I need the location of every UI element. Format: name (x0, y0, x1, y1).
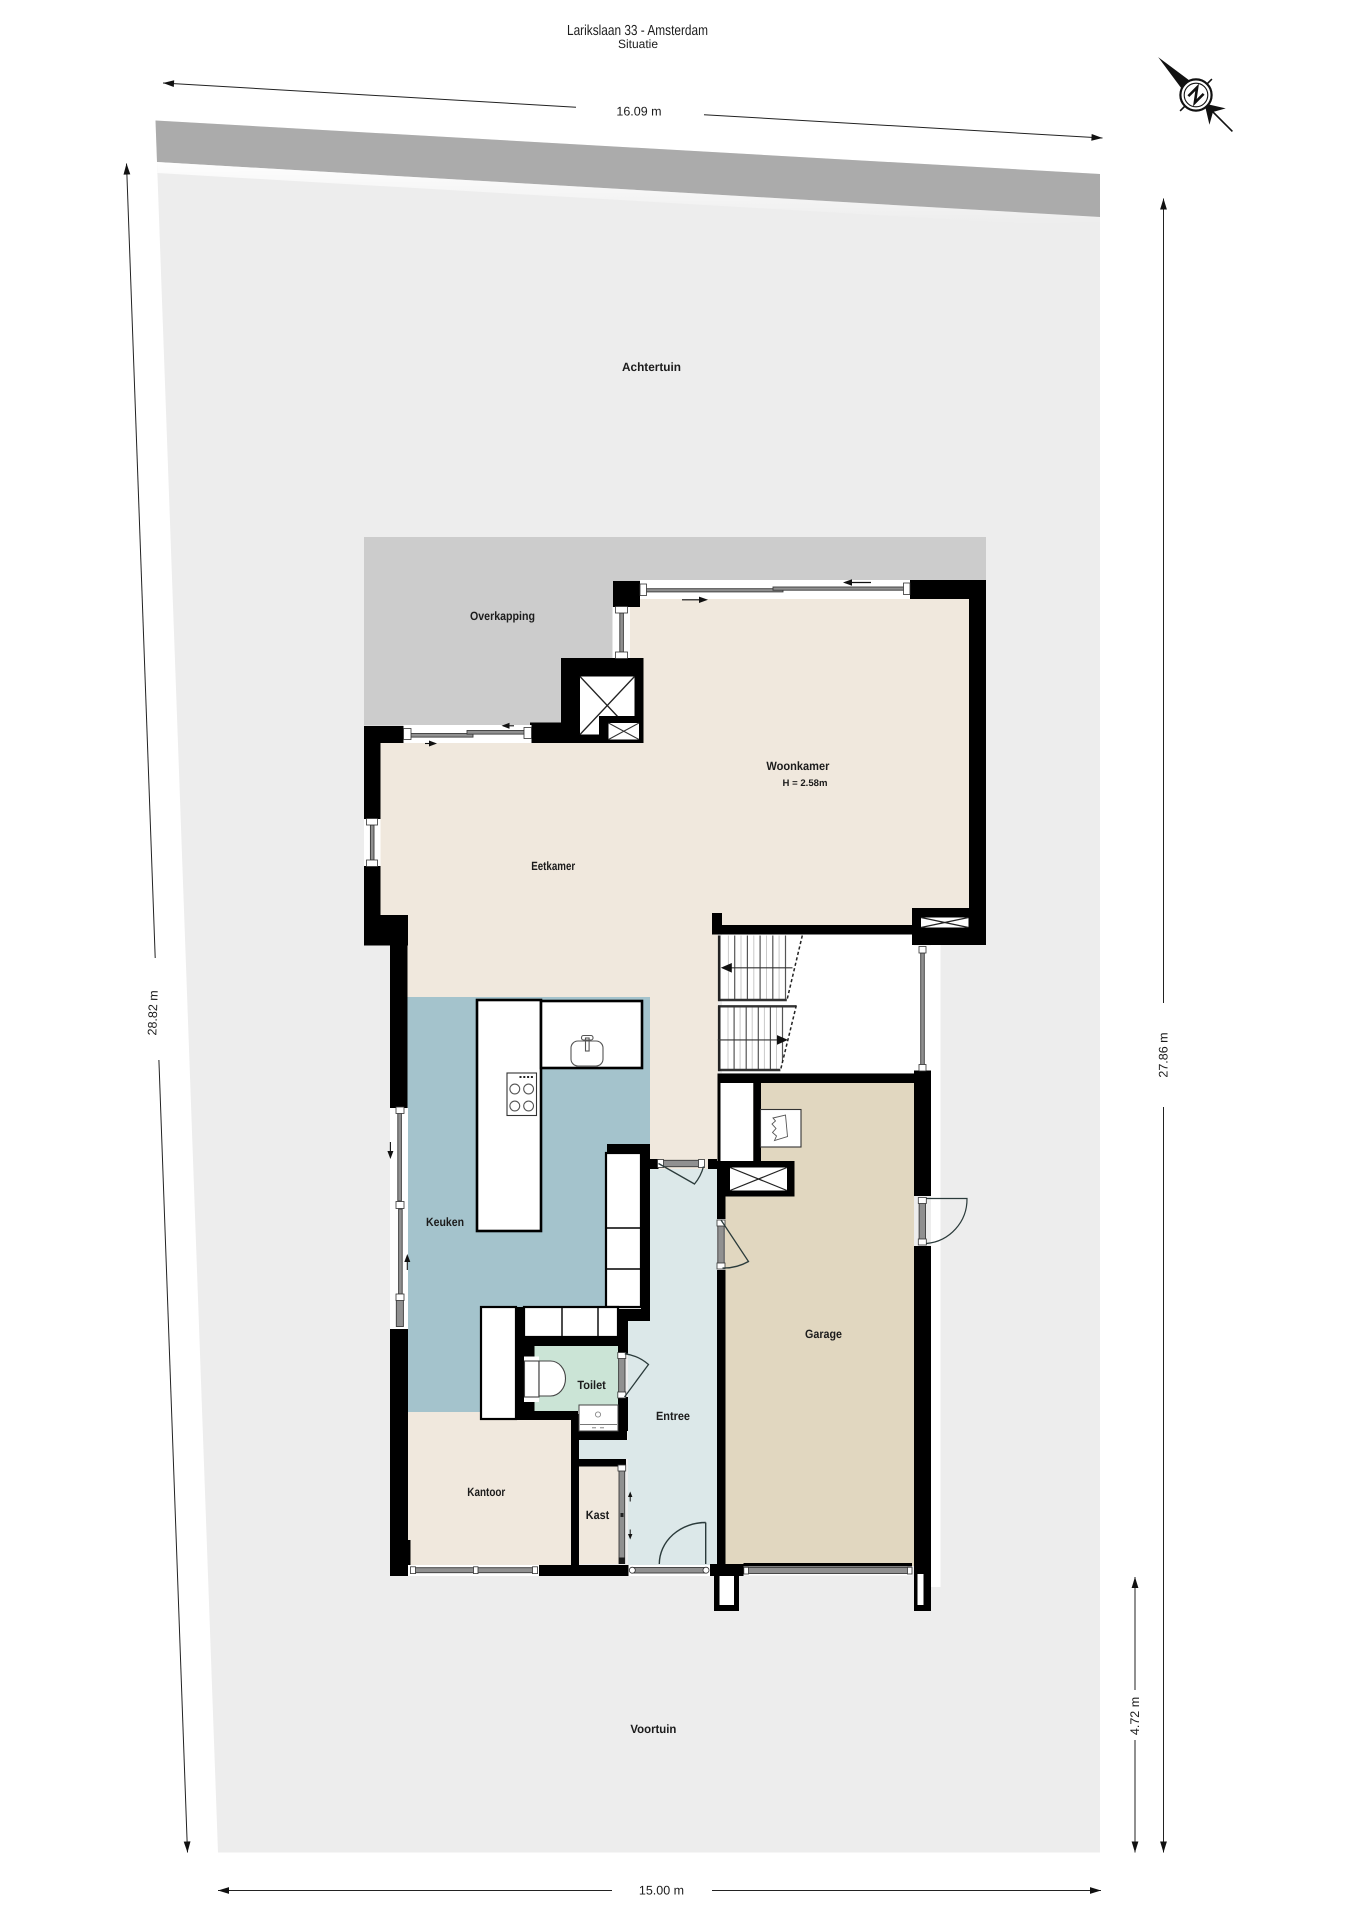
svg-text:Voortuin: Voortuin (630, 1722, 676, 1736)
svg-text:Eetkamer: Eetkamer (531, 859, 575, 873)
svg-text:15.00 m: 15.00 m (639, 1884, 684, 1898)
svg-text:Entree: Entree (656, 1409, 690, 1423)
svg-text:Situatie: Situatie (618, 37, 658, 51)
svg-text:H = 2.58m: H = 2.58m (783, 778, 828, 789)
svg-text:Achtertuin: Achtertuin (622, 360, 681, 374)
svg-text:Kast: Kast (586, 1508, 610, 1522)
svg-text:Overkapping: Overkapping (470, 609, 535, 623)
svg-text:Kantoor: Kantoor (467, 1485, 505, 1499)
svg-text:4.72 m: 4.72 m (1128, 1697, 1142, 1735)
svg-text:28.82 m: 28.82 m (145, 990, 161, 1036)
svg-text:16.09 m: 16.09 m (616, 105, 661, 119)
svg-text:Keuken: Keuken (426, 1215, 464, 1229)
svg-text:Toilet: Toilet (577, 1378, 606, 1392)
svg-text:Woonkamer: Woonkamer (766, 759, 829, 773)
svg-text:Garage: Garage (805, 1327, 842, 1341)
svg-text:27.86 m: 27.86 m (1157, 1032, 1171, 1077)
